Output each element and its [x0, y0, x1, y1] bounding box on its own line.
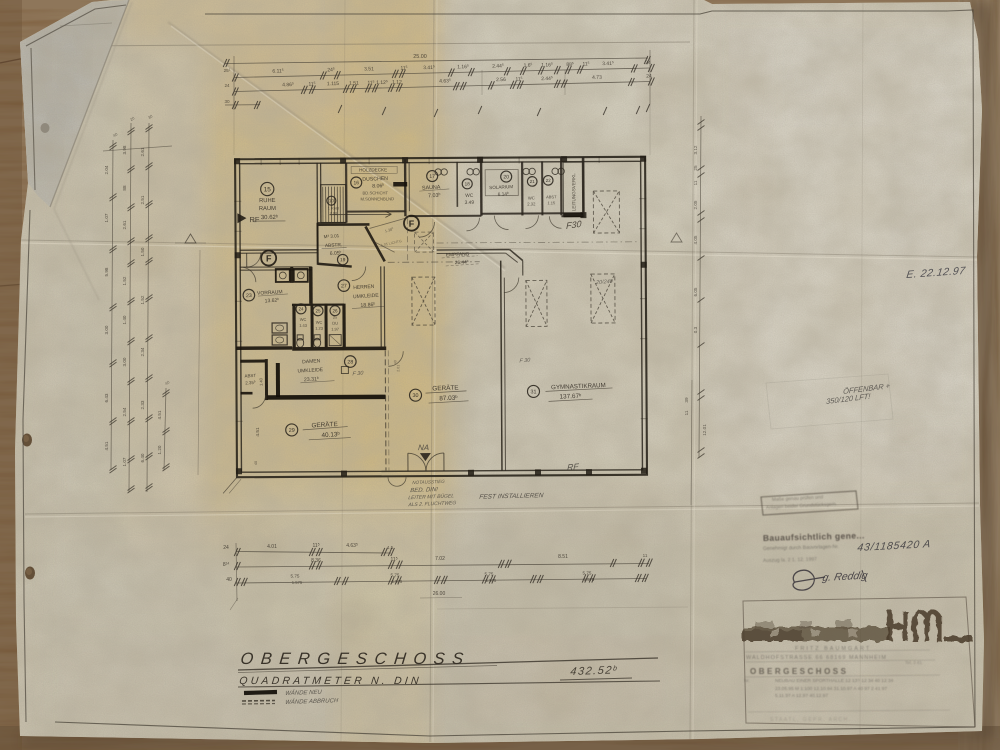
svg-text:2x: 2x [333, 315, 337, 320]
svg-text:LEITUNGSVERKL: LEITUNGSVERKL [571, 173, 576, 212]
svg-text:13.62b: 13.62b [265, 297, 280, 304]
svg-text:3.51: 3.51 [364, 66, 374, 72]
svg-text:39: 39 [684, 397, 689, 403]
svg-text:1.97: 1.97 [331, 327, 340, 332]
svg-text:11: 11 [693, 180, 698, 185]
svg-text:1.575: 1.575 [292, 580, 303, 585]
svg-text:20: 20 [503, 174, 509, 180]
svg-text:WC: WC [528, 195, 535, 200]
svg-text:11: 11 [684, 410, 689, 415]
svg-text:5.98: 5.98 [104, 267, 109, 276]
svg-text:8.36: 8.36 [311, 558, 321, 564]
svg-text:30: 30 [224, 99, 230, 104]
svg-text:WÄNDE NEU: WÄNDE NEU [285, 689, 323, 697]
svg-text:F: F [409, 219, 415, 229]
svg-text:23.05.95 M 1:100 12.10.94: 23.05.95 M 1:100 12.10.94 31.10.97 A 40 … [775, 686, 887, 692]
svg-text:WALDHOFSTRASSE 66 68169: WALDHOFSTRASSE 66 68169 MANNHEIM [746, 655, 887, 661]
svg-text:1.52: 1.52 [140, 295, 145, 304]
svg-text:7.02: 7.02 [435, 556, 445, 562]
svg-text:OBERGESCHOSS: OBERGESCHOSS [240, 649, 472, 668]
svg-text:1.575: 1.575 [584, 577, 595, 582]
svg-text:12.01: 12.01 [702, 424, 707, 436]
svg-text:25: 25 [315, 308, 321, 313]
svg-text:6.43: 6.43 [104, 393, 109, 402]
svg-text:16: 16 [353, 180, 359, 186]
svg-text:DU: DU [332, 321, 338, 326]
svg-text:BED. DIN!: BED. DIN! [410, 487, 439, 494]
svg-text:2.56: 2.56 [496, 77, 506, 83]
svg-text:RF: RF [249, 215, 259, 224]
svg-text:5.75: 5.75 [391, 572, 400, 577]
svg-text:1.40: 1.40 [258, 377, 263, 386]
svg-text:2.34: 2.34 [140, 347, 145, 356]
svg-text:4.51: 4.51 [104, 441, 109, 450]
svg-text:30: 30 [413, 393, 419, 399]
svg-text:M.SONNENBLND: M.SONNENBLND [360, 196, 394, 201]
svg-text:F 30: F 30 [519, 357, 531, 364]
svg-text:1.115: 1.115 [327, 81, 339, 87]
svg-text:3.00: 3.00 [122, 357, 127, 366]
svg-text:1.52: 1.52 [122, 276, 127, 285]
svg-text:ABST: ABST [244, 373, 256, 379]
svg-text:5.11.97 A 12.97 40.12.97: 5.11.97 A 12.97 40.12.97 [775, 693, 828, 699]
svg-text:OBERGESCHOSS: OBERGESCHOSS [750, 667, 848, 676]
svg-text:DUSCHEN: DUSCHEN [362, 176, 388, 183]
svg-text:1.20: 1.20 [157, 445, 162, 454]
svg-text:3.00: 3.00 [104, 325, 109, 334]
svg-text:2.04: 2.04 [104, 165, 109, 174]
svg-text:2.01: 2.01 [396, 365, 400, 372]
svg-text:RUHE: RUHE [259, 198, 276, 204]
svg-text:40: 40 [393, 360, 397, 364]
svg-text:NA: NA [418, 443, 430, 452]
svg-text:21: 21 [530, 179, 535, 184]
svg-text:2.33: 2.33 [140, 400, 145, 409]
svg-text:24: 24 [224, 83, 230, 88]
svg-text:HOLZDECKE: HOLZDECKE [359, 167, 387, 172]
svg-text:24: 24 [298, 307, 304, 312]
svg-text:19: 19 [340, 257, 346, 263]
svg-text:15: 15 [264, 186, 272, 193]
svg-text:30.62b: 30.62b [261, 213, 278, 221]
svg-text:4.51: 4.51 [255, 427, 261, 437]
svg-text:31: 31 [530, 389, 536, 395]
svg-text:1.07: 1.07 [104, 213, 109, 222]
svg-text:40: 40 [254, 461, 258, 465]
svg-text:29: 29 [289, 428, 295, 434]
svg-text:1.51: 1.51 [349, 81, 359, 87]
svg-text:1.07: 1.07 [122, 457, 127, 466]
svg-text:2.05: 2.05 [693, 200, 698, 209]
svg-text:g. Reddig: g. Reddig [821, 570, 868, 584]
svg-text:432.52b: 432.52b [570, 664, 619, 678]
svg-text:ABST: ABST [546, 194, 557, 199]
svg-text:DAMEN: DAMEN [302, 358, 321, 365]
svg-text:5.75: 5.75 [485, 571, 494, 576]
svg-text:6.05: 6.05 [693, 287, 698, 296]
svg-text:26.00: 26.00 [433, 591, 446, 597]
svg-text:1.575: 1.575 [392, 579, 403, 584]
svg-text:Tel. 3 81: Tel. 3 81 [905, 660, 923, 665]
svg-text:WC: WC [316, 320, 323, 325]
svg-text:3.12: 3.12 [693, 145, 698, 154]
svg-text:25: 25 [693, 165, 698, 171]
svg-text:27: 27 [341, 283, 347, 289]
svg-text:F 30: F 30 [352, 370, 364, 377]
svg-text:1.575: 1.575 [486, 578, 497, 583]
svg-text:RF: RF [567, 461, 580, 472]
svg-text:4.5: 4.5 [387, 545, 394, 550]
svg-text:WC: WC [300, 317, 307, 322]
svg-text:2.32: 2.32 [527, 201, 536, 206]
svg-text:40: 40 [226, 577, 232, 583]
svg-text:Nr.: Nr. [744, 678, 750, 683]
svg-text:SOLARIUM: SOLARIUM [489, 184, 513, 190]
svg-text:8.51: 8.51 [558, 554, 568, 560]
svg-text:22: 22 [546, 178, 551, 183]
svg-text:17: 17 [429, 174, 435, 180]
svg-text:137.67b: 137.67b [559, 392, 582, 401]
svg-text:1.40: 1.40 [122, 315, 127, 324]
svg-text:88: 88 [122, 185, 127, 191]
svg-text:10: 10 [329, 198, 335, 203]
svg-text:1.15: 1.15 [547, 200, 556, 205]
svg-text:6.40: 6.40 [140, 453, 145, 462]
svg-text:3.49: 3.49 [465, 200, 475, 206]
svg-text:4.51: 4.51 [157, 410, 162, 419]
svg-text:1.50: 1.50 [140, 247, 145, 256]
svg-text:1 RHB: 1 RHB [328, 207, 340, 211]
svg-text:4.05: 4.05 [693, 235, 698, 244]
svg-text:28: 28 [347, 359, 353, 365]
svg-text:1.23: 1.23 [315, 326, 324, 331]
svg-text:F: F [266, 254, 272, 264]
svg-text:WC: WC [465, 193, 474, 199]
svg-text:24: 24 [223, 545, 229, 551]
svg-text:18: 18 [465, 182, 471, 187]
svg-text:24: 24 [646, 73, 652, 79]
svg-text:25.00: 25.00 [413, 54, 427, 60]
svg-text:1.12: 1.12 [392, 79, 402, 85]
svg-text:11: 11 [643, 553, 648, 558]
svg-text:5.75: 5.75 [583, 570, 592, 575]
svg-text:2.61: 2.61 [122, 220, 127, 229]
svg-text:26: 26 [332, 308, 338, 313]
svg-text:BD.SCHICHT: BD.SCHICHT [362, 190, 388, 195]
svg-text:5.75: 5.75 [291, 573, 300, 578]
svg-text:4.73: 4.73 [592, 75, 602, 81]
svg-text:7.88: 7.88 [330, 212, 337, 216]
svg-text:HERREN: HERREN [353, 284, 375, 291]
svg-text:0.3: 0.3 [693, 326, 698, 333]
svg-text:2.51: 2.51 [140, 195, 145, 204]
svg-text:4.01: 4.01 [267, 544, 277, 550]
svg-text:STAATL. GEPR. ARCH.: STAATL. GEPR. ARCH. [770, 717, 852, 723]
svg-text:RAUM: RAUM [259, 206, 276, 212]
svg-text:1.43: 1.43 [299, 323, 308, 328]
svg-text:2.54: 2.54 [122, 407, 127, 416]
svg-text:NEUBAU EINER SPORTHALLE 12: NEUBAU EINER SPORTHALLE 12 13? 12 34 40 … [775, 678, 894, 684]
svg-text:23: 23 [246, 293, 252, 299]
